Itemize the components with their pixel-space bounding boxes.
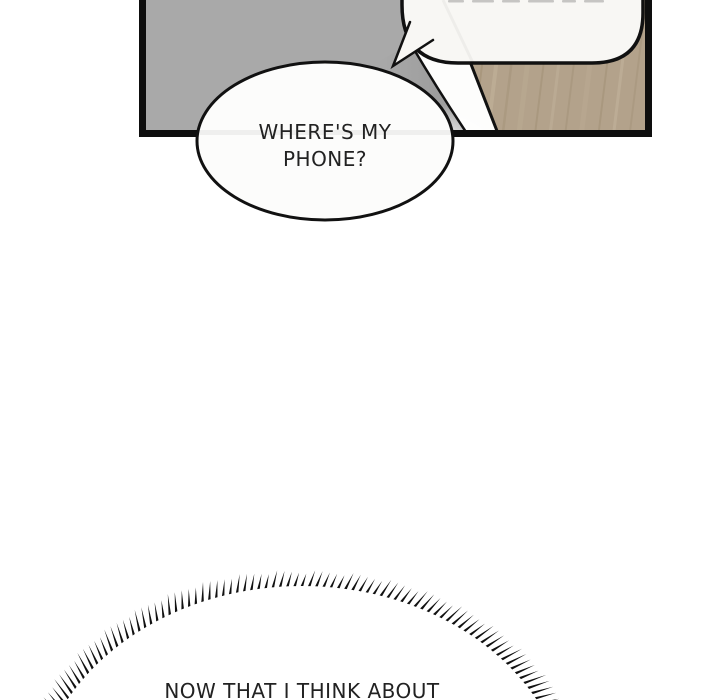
burst-spike — [279, 571, 285, 587]
burst-spike — [195, 588, 198, 605]
burst-spike — [117, 623, 124, 643]
burst-spike — [229, 579, 232, 595]
comic-artwork — [0, 0, 720, 700]
burst-spike — [215, 580, 218, 598]
burst-spike — [366, 579, 376, 593]
burst-spike — [135, 610, 141, 632]
burst-spike — [141, 607, 146, 628]
burst-spike — [519, 671, 538, 680]
burst-spike — [77, 653, 89, 675]
burst-spike — [344, 573, 353, 589]
phone-text-line-1: WHERE'S MY — [215, 119, 435, 146]
burst-spike — [243, 574, 247, 592]
burst-spike — [337, 575, 345, 588]
burst-spike — [250, 574, 254, 590]
burst-spike — [264, 574, 269, 588]
burst-spike — [301, 574, 307, 586]
burst-bubble-text: NOW THAT I THINK ABOUT — [137, 679, 467, 700]
burst-spike — [480, 631, 499, 644]
burst-spike — [100, 637, 108, 656]
burst-spike — [407, 591, 419, 604]
burst-spike — [286, 572, 292, 587]
phone-text-line-2: PHONE? — [215, 146, 435, 173]
burst-spike — [531, 687, 553, 694]
burst-spike — [208, 581, 211, 600]
burst-spike — [359, 577, 369, 592]
burst-spike — [155, 602, 159, 621]
burst-spike — [330, 574, 337, 588]
burst-spike — [222, 579, 225, 596]
burst-spike — [148, 605, 153, 625]
burst-spike — [315, 571, 322, 586]
burst-spike — [168, 594, 171, 615]
burst-spike — [373, 581, 383, 594]
burst-spike — [52, 687, 65, 700]
burst-spike — [535, 693, 556, 700]
burst-spike — [527, 681, 549, 689]
burst-spike — [129, 617, 135, 636]
burst-spike — [323, 573, 330, 587]
burst-spike — [236, 574, 240, 593]
burst-spike — [94, 641, 103, 661]
burst-spike — [59, 674, 73, 694]
burst-spike — [475, 626, 494, 640]
burst-spike — [110, 626, 118, 647]
webtoon-page[interactable]: WHERE'S MY PHONE? NOW THAT I THINK ABOUT — [0, 0, 720, 700]
burst-spike — [54, 679, 69, 699]
burst-spike — [123, 620, 129, 640]
burst-spike — [308, 570, 315, 586]
burst-spike — [175, 592, 178, 612]
speech-bubble-top — [393, 0, 643, 66]
burst-spike — [181, 590, 184, 609]
burst-spike — [201, 582, 204, 602]
burst-spike — [272, 570, 278, 587]
burst-spike — [351, 575, 361, 591]
burst-spike — [104, 630, 113, 652]
burst-spike — [293, 573, 299, 587]
burst-spike — [161, 600, 164, 618]
burst-spike — [257, 574, 261, 589]
speech-bubble-phone-text: WHERE'S MY PHONE? — [215, 119, 435, 173]
burst-spike — [446, 606, 463, 621]
burst-spike — [64, 670, 77, 690]
burst-spike — [188, 589, 190, 607]
speech-bubble-top-shape — [402, 0, 643, 63]
